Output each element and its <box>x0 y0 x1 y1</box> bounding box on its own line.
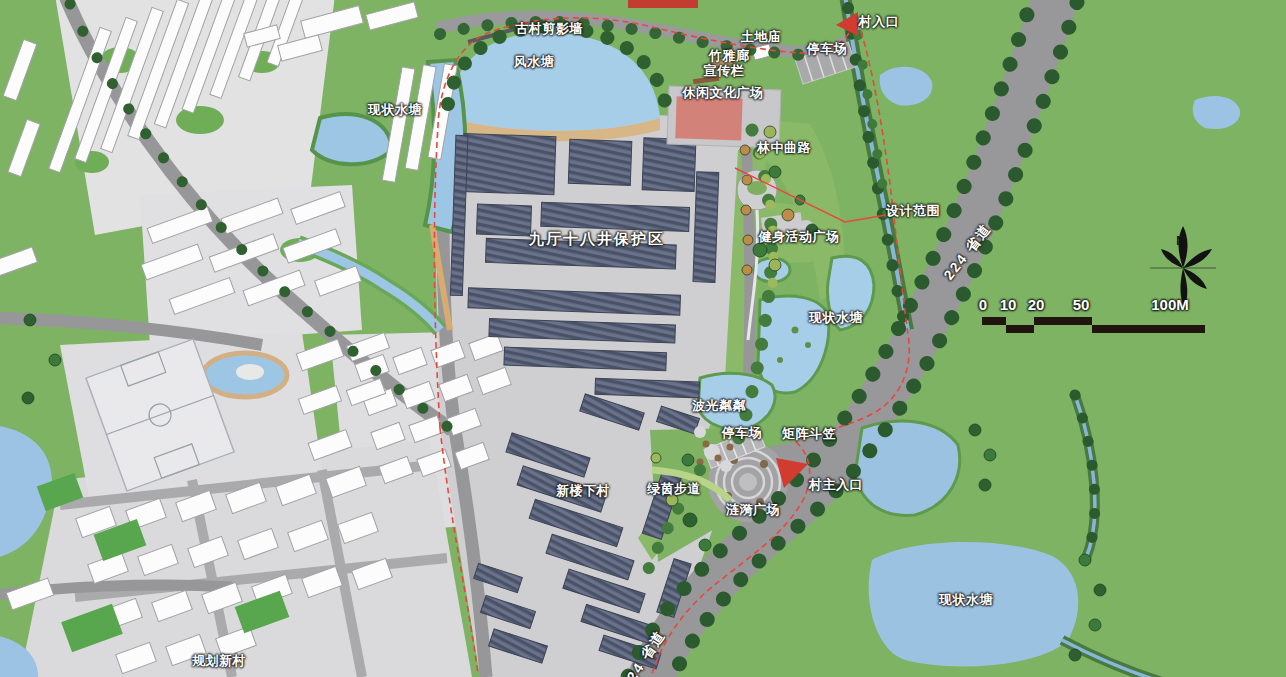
label-existing-pond-center: 现状水塘 <box>809 309 863 327</box>
label-planned-new-village: 规划新村 <box>192 652 246 670</box>
scale-bar-segment <box>1092 325 1205 333</box>
label-shimmering-water: 波光粼粼 <box>692 397 746 415</box>
label-existing-pond-southeast: 现状水塘 <box>939 591 993 609</box>
top-sign-partial <box>628 0 698 8</box>
label-north: N <box>1176 234 1186 248</box>
label-green-walkway: 绿茵步道 <box>647 480 701 498</box>
label-fengshui-pond: 风水塘 <box>514 53 555 71</box>
label-village-entrance: 村入口 <box>859 13 900 31</box>
label-matrix-hats: 矩阵斗笠 <box>782 425 836 443</box>
label-parking-north: 停车场 <box>807 40 848 58</box>
label-fitness-plaza: 健身活动广场 <box>759 228 840 246</box>
label-existing-pond-west: 现状水塘 <box>368 101 422 119</box>
label-silhouette-wall: 古村剪影墙 <box>515 20 583 38</box>
scale-bar-segment <box>1006 325 1034 333</box>
scale-bar-segment <box>982 317 1006 325</box>
label-ripple-plaza: 涟漪广场 <box>726 501 780 519</box>
label-leisure-plaza: 休闲文化广场 <box>683 84 764 102</box>
scale-tick-100: 100M <box>1151 296 1189 313</box>
label-village-main-entrance: 村主入口 <box>809 476 863 494</box>
label-earth-temple: 土地庙 <box>741 28 782 46</box>
label-xinlouxia-village: 新楼下村 <box>556 482 610 500</box>
scale-tick-10: 10 <box>1000 296 1017 313</box>
site-plan-map: 古村剪影墙 风水塘 竹雅廊 土地庙 停车场 村入口 宣传栏 休闲文化广场 现状水… <box>0 0 1286 677</box>
label-bulletin-board: 宣传栏 <box>704 62 745 80</box>
scale-tick-50: 50 <box>1073 296 1090 313</box>
label-protection-zone: 九厅十八井保护区 <box>529 230 665 249</box>
map-canvas <box>0 0 1286 677</box>
label-design-boundary: 设计范围 <box>886 202 940 220</box>
label-forest-path: 林中曲路 <box>757 139 811 157</box>
label-parking-mid: 停车场 <box>722 424 763 442</box>
scale-bar-segment <box>1034 317 1092 325</box>
scale-tick-0: 0 <box>979 296 987 313</box>
scale-tick-20: 20 <box>1028 296 1045 313</box>
